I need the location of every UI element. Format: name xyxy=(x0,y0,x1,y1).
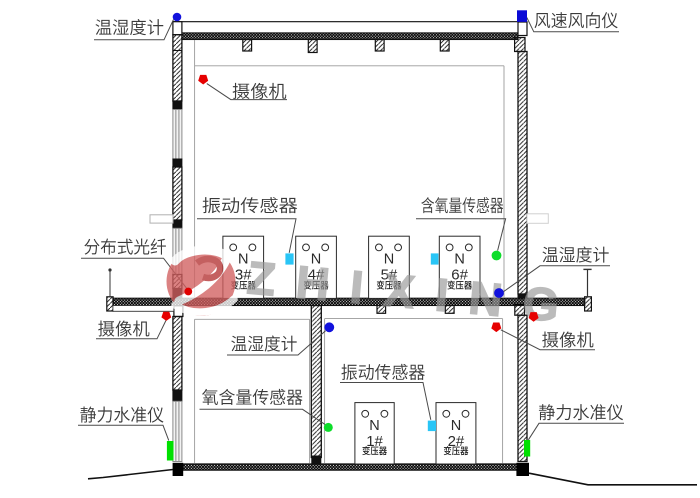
svg-text:N: N xyxy=(451,418,461,434)
svg-text:N: N xyxy=(238,252,248,268)
svg-text:N: N xyxy=(454,252,464,268)
svg-text:N: N xyxy=(369,418,379,434)
